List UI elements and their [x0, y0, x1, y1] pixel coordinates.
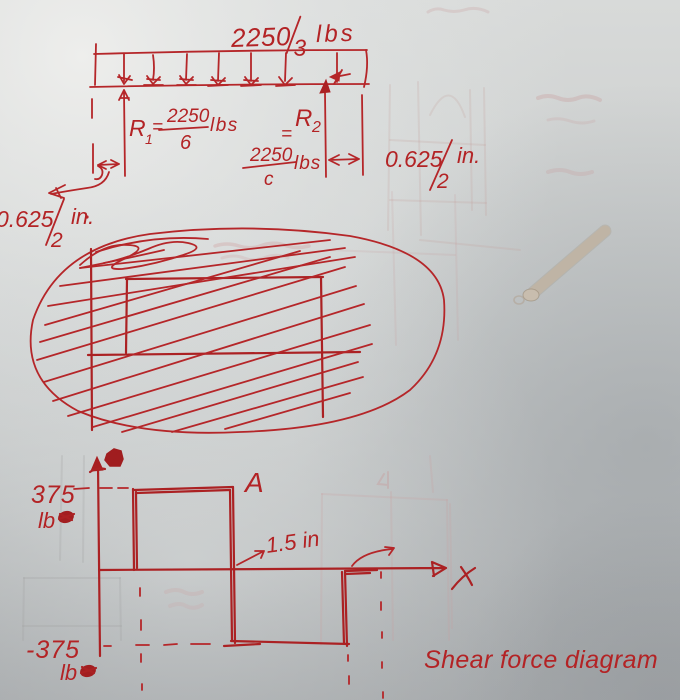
svg-text:2: 2 [436, 170, 449, 193]
svg-text:Shear force diagram: Shear force diagram [424, 646, 658, 674]
svg-text:3: 3 [293, 34, 307, 60]
svg-text:lbs: lbs [316, 20, 357, 48]
svg-text:=: = [281, 124, 292, 145]
svg-text:lb: lb [38, 508, 55, 533]
svg-text:6: 6 [180, 132, 192, 154]
svg-text:A: A [243, 467, 264, 498]
svg-text:lb: lb [60, 660, 77, 685]
svg-text:lbs: lbs [294, 153, 321, 174]
svg-text:2250: 2250 [230, 21, 292, 53]
svg-text:R: R [295, 105, 312, 132]
svg-text:0.625: 0.625 [385, 146, 443, 172]
svg-text:R: R [129, 115, 146, 141]
svg-text:c: c [264, 169, 274, 190]
svg-text:in.: in. [71, 204, 94, 229]
svg-text:2: 2 [50, 229, 63, 252]
svg-text:2250: 2250 [166, 106, 210, 127]
svg-text:in.: in. [457, 143, 480, 168]
svg-text:2: 2 [311, 119, 321, 136]
svg-text:375: 375 [31, 481, 76, 509]
svg-text:0.625: 0.625 [0, 206, 54, 232]
svg-text:lbs: lbs [210, 115, 239, 136]
svg-text:=: = [152, 117, 163, 138]
